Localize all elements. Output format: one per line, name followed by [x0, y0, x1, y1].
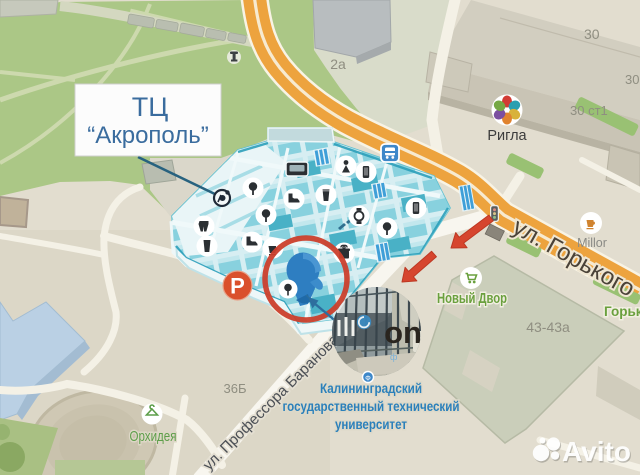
svg-text:ТЦ: ТЦ [132, 92, 168, 122]
svg-text:Калининградский: Калининградский [320, 381, 422, 396]
svg-text:ф: ф [390, 352, 398, 362]
svg-text:“Акрополь”: “Акрополь” [87, 122, 209, 149]
svg-text:2а: 2а [330, 56, 346, 72]
svg-text:Горько: Горько [604, 304, 640, 319]
svg-text:30 ст1: 30 ст1 [570, 103, 608, 118]
svg-text:университет: университет [335, 417, 407, 432]
svg-text:on: on [384, 315, 422, 350]
svg-text:36Б: 36Б [224, 381, 247, 396]
svg-text:43-43а: 43-43а [526, 319, 570, 335]
svg-text:Новый Двор: Новый Двор [437, 291, 507, 307]
svg-text:30а: 30а [625, 72, 640, 87]
svg-text:государственный технический: государственный технический [283, 399, 460, 414]
svg-text:30: 30 [584, 26, 600, 42]
svg-text:P: P [230, 274, 245, 299]
svg-text:Орхидея: Орхидея [130, 429, 177, 445]
svg-text:Avito: Avito [562, 436, 631, 467]
svg-text:Ригла: Ригла [487, 128, 527, 144]
